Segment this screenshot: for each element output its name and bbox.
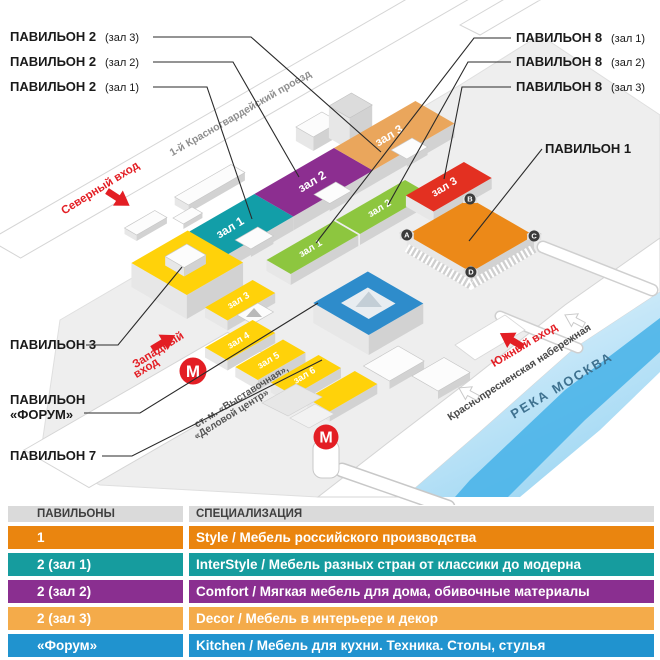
spec-cell: Decor / Мебель в интерьере и декор bbox=[189, 607, 654, 630]
callout-pavilion2-hall2: ПАВИЛЬОН 2 bbox=[10, 54, 96, 69]
svg-text:(зал 2): (зал 2) bbox=[105, 57, 139, 69]
svg-text:C: C bbox=[531, 232, 537, 241]
service-building bbox=[173, 207, 202, 229]
callout-pavilion2-hall1: ПАВИЛЬОН 2 bbox=[10, 79, 96, 94]
table-header-specialization: СПЕЦИАЛИЗАЦИЯ bbox=[189, 506, 654, 522]
expo-map-page: A B C D зал 1 зал 2 зал 3 зал 1 зал 2 за… bbox=[0, 0, 660, 660]
callout-pavilion3: ПАВИЛЬОН 3 bbox=[10, 337, 96, 352]
table-row: 2 (зал 2) Comfort / Мягкая мебель для до… bbox=[8, 580, 654, 603]
svg-text:(зал 3): (зал 3) bbox=[105, 32, 139, 44]
table-header-row: ПАВИЛЬОНЫ СПЕЦИАЛИЗАЦИЯ bbox=[8, 506, 654, 522]
spec-cell: Kitchen / Мебель для кухни. Техника. Сто… bbox=[189, 634, 654, 657]
street-name-krasnogvardeysky: 1-й Красногвардейский проезд bbox=[168, 68, 314, 159]
pavilion-cell: 1 bbox=[8, 526, 183, 549]
svg-text:(зал 1): (зал 1) bbox=[611, 33, 645, 45]
callout-pavilion8-hall3: ПАВИЛЬОН 8 bbox=[516, 79, 602, 94]
callout-pavilion7: ПАВИЛЬОН 7 bbox=[10, 448, 96, 463]
service-building bbox=[125, 211, 167, 242]
expo-map: A B C D зал 1 зал 2 зал 3 зал 1 зал 2 за… bbox=[0, 0, 660, 505]
table-row: 2 (зал 1) InterStyle / Мебель разных стр… bbox=[8, 553, 654, 576]
svg-text:М: М bbox=[319, 430, 332, 447]
svg-text:М: М bbox=[186, 362, 200, 381]
svg-text:(зал 2): (зал 2) bbox=[611, 57, 645, 69]
callout-pavilion-forum-line2: «ФОРУМ» bbox=[10, 407, 73, 422]
spec-cell: InterStyle / Мебель разных стран от клас… bbox=[189, 553, 654, 576]
pavilion-cell: «Форум» bbox=[8, 634, 183, 657]
callout-pavilion1: ПАВИЛЬОН 1 bbox=[545, 141, 631, 156]
pavilion-table: ПАВИЛЬОНЫ СПЕЦИАЛИЗАЦИЯ 1 Style / Мебель… bbox=[8, 506, 654, 660]
svg-text:(зал 1): (зал 1) bbox=[105, 82, 139, 94]
svg-text:(зал 3): (зал 3) bbox=[611, 82, 645, 94]
svg-text:A: A bbox=[404, 231, 410, 240]
table-header-pavilions: ПАВИЛЬОНЫ bbox=[8, 506, 183, 522]
pavilion-cell: 2 (зал 1) bbox=[8, 553, 183, 576]
table-row: 1 Style / Мебель российского производств… bbox=[8, 526, 654, 549]
callout-pavilion8-hall2: ПАВИЛЬОН 8 bbox=[516, 54, 602, 69]
callout-pavilion8-hall1: ПАВИЛЬОН 8 bbox=[516, 30, 602, 45]
callout-pavilion-forum-line1: ПАВИЛЬОН bbox=[10, 392, 85, 407]
table-row: «Форум» Kitchen / Мебель для кухни. Техн… bbox=[8, 634, 654, 657]
pavilion-cell: 2 (зал 3) bbox=[8, 607, 183, 630]
metro-icon: М bbox=[314, 425, 339, 450]
table-row: 2 (зал 3) Decor / Мебель в интерьере и д… bbox=[8, 607, 654, 630]
svg-text:B: B bbox=[467, 195, 473, 204]
callout-pavilion2-hall3: ПАВИЛЬОН 2 bbox=[10, 29, 96, 44]
svg-text:D: D bbox=[468, 268, 474, 277]
spec-cell: Style / Мебель российского производства bbox=[189, 526, 654, 549]
pavilion-cell: 2 (зал 2) bbox=[8, 580, 183, 603]
spec-cell: Comfort / Мягкая мебель для дома, обивоч… bbox=[189, 580, 654, 603]
